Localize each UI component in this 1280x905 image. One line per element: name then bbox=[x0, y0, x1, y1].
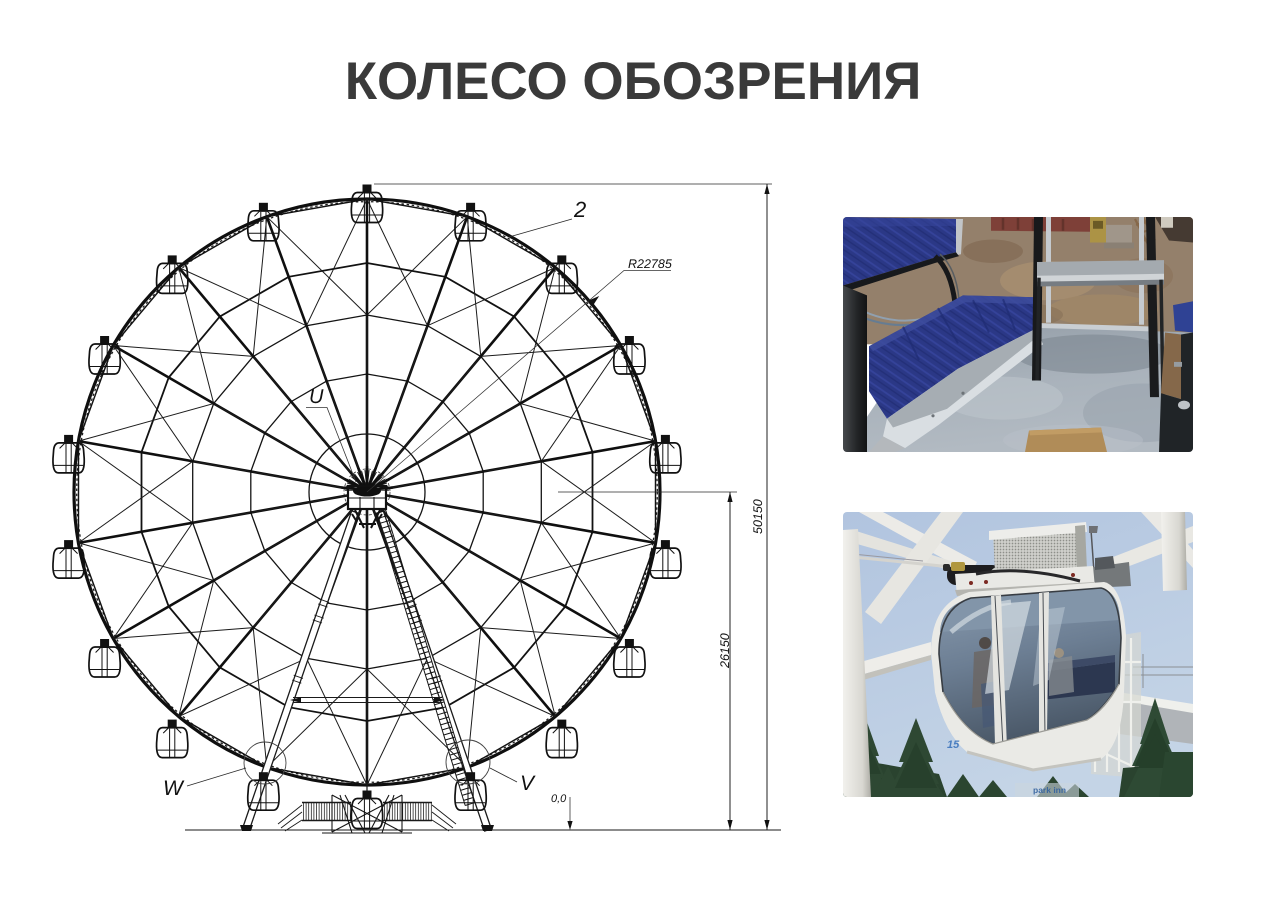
svg-text:W: W bbox=[163, 777, 185, 800]
svg-text:15: 15 bbox=[947, 739, 960, 751]
svg-text:park inn: park inn bbox=[1033, 785, 1066, 795]
svg-text:V: V bbox=[520, 772, 536, 795]
svg-text:U: U bbox=[309, 386, 324, 408]
svg-text:50150: 50150 bbox=[751, 499, 765, 534]
svg-text:26150: 26150 bbox=[718, 633, 732, 669]
svg-text:0,0: 0,0 bbox=[551, 793, 567, 805]
svg-text:2: 2 bbox=[573, 197, 586, 222]
svg-text:R22785: R22785 bbox=[628, 257, 672, 271]
